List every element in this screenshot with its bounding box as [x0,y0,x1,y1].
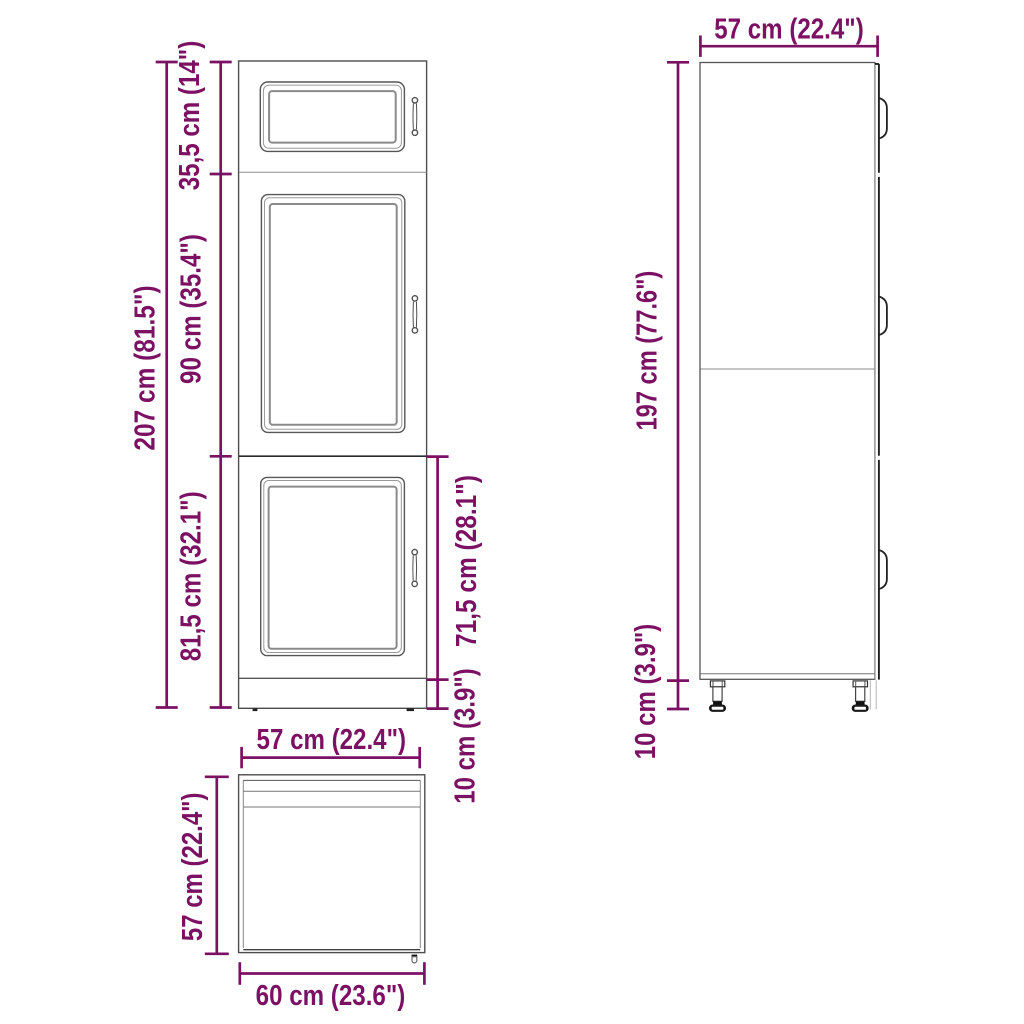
svg-text:57 cm (22.4"): 57 cm (22.4") [714,13,864,45]
svg-text:10 cm (3.9"): 10 cm (3.9") [630,624,662,760]
svg-text:10 cm (3.9"): 10 cm (3.9") [450,668,482,804]
svg-text:71,5 cm (28.1"): 71,5 cm (28.1") [451,475,483,647]
svg-text:90 cm (35.4"): 90 cm (35.4") [175,234,207,384]
svg-text:60 cm (23.6"): 60 cm (23.6") [256,980,406,1012]
svg-text:81,5 cm (32.1"): 81,5 cm (32.1") [176,491,208,661]
svg-text:207 cm (81.5"): 207 cm (81.5") [129,285,161,450]
svg-text:57 cm (22.4"): 57 cm (22.4") [177,793,209,942]
svg-text:35,5 cm (14"): 35,5 cm (14") [174,41,206,191]
svg-text:197 cm (77.6"): 197 cm (77.6") [632,271,664,431]
svg-text:57 cm (22.4"): 57 cm (22.4") [257,724,407,756]
